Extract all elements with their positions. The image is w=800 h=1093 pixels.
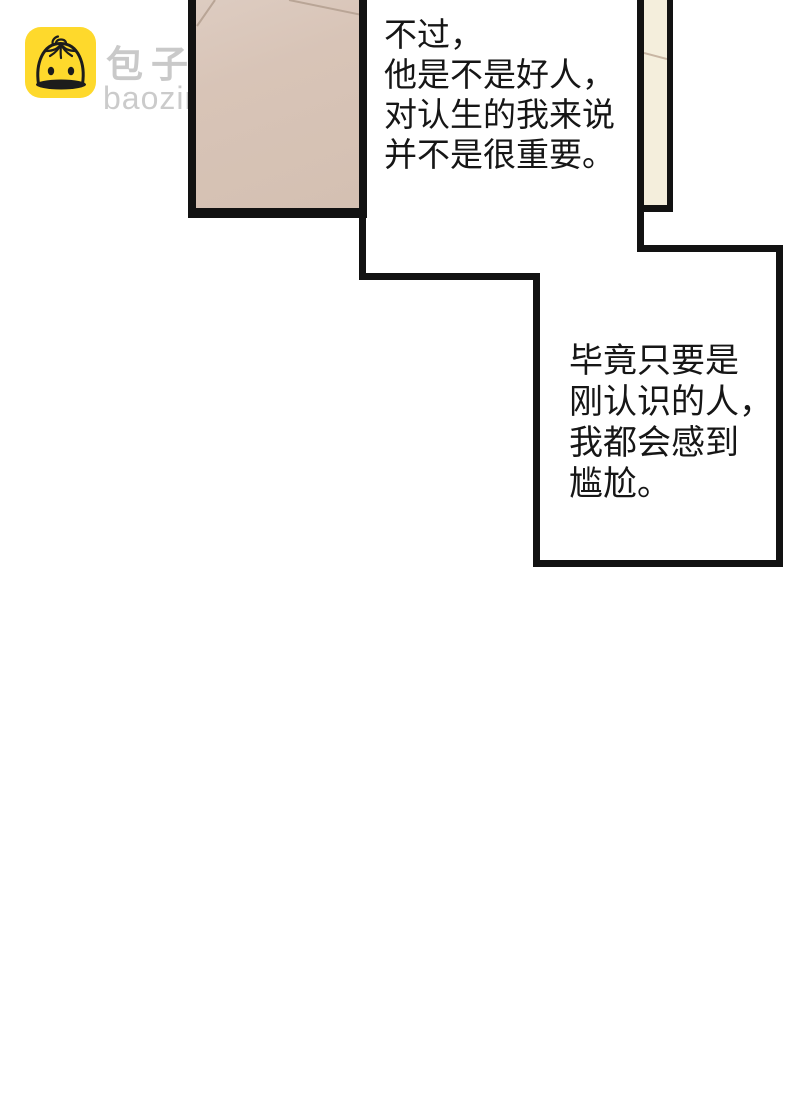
speech-box-outline-left-upper <box>359 206 366 280</box>
text-line: 我都会感到 <box>569 423 773 464</box>
speech-box-outline-left-lower <box>533 273 540 567</box>
text-line: 刚认识的人， <box>569 382 773 423</box>
text-line: 他是不是好人， <box>384 56 615 96</box>
speech-box-outline-step-horizontal <box>359 273 540 280</box>
comic-page: 包子漫畫 baozimh.com 不过， 他是不是好人， 对认生的我来说 并不是… <box>0 0 800 1093</box>
text-line: 毕竟只要是 <box>569 341 773 382</box>
text-line: 并不是很重要。 <box>384 136 615 176</box>
speech-box-outline-bottom <box>533 560 783 567</box>
speech-box-outline-right-upper-connector <box>637 205 644 252</box>
comic-panel-right <box>637 0 673 212</box>
baozi-bun-icon <box>25 27 96 98</box>
monologue-text-1: 不过， 他是不是好人， 对认生的我来说 并不是很重要。 <box>384 16 615 176</box>
comic-panel-left <box>188 0 367 218</box>
speech-box-outline-top <box>637 245 783 252</box>
text-line: 尴尬。 <box>569 464 773 505</box>
wall-seam-line-icon <box>644 0 667 205</box>
baozi-bun-icon-svg <box>25 27 96 98</box>
text-line: 不过， <box>384 16 615 56</box>
wall-corner-lines-icon <box>196 0 359 208</box>
text-line: 对认生的我来说 <box>384 96 615 136</box>
monologue-text-2: 毕竟只要是 刚认识的人， 我都会感到 尴尬。 <box>569 341 773 505</box>
speech-box-outline-right <box>776 245 783 567</box>
